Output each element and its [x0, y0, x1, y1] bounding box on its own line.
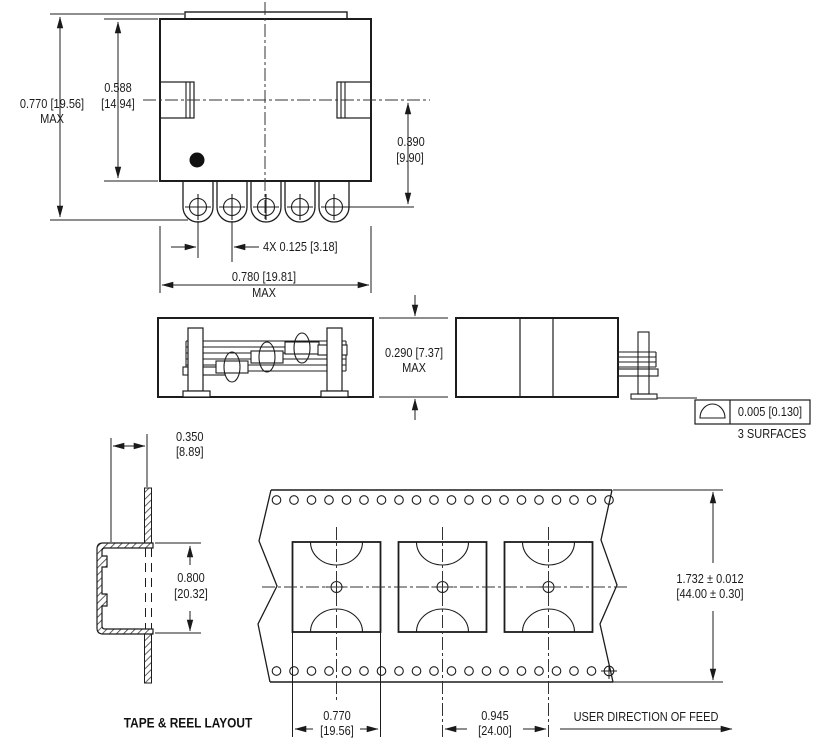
tape-dimensions	[293, 490, 733, 737]
datum-hole-crosshair	[601, 663, 617, 679]
label-pocket-depth-mm: [8.89]	[176, 446, 204, 459]
pocket-profile	[97, 543, 153, 634]
drawing-linework	[0, 0, 817, 751]
tape-layout-linework	[258, 490, 732, 737]
pin1-indicator-dot	[190, 153, 205, 168]
label-pocket-depth: 0.350	[176, 431, 204, 444]
tape-break-right	[600, 490, 617, 682]
sprocket-holes-bottom	[272, 663, 617, 679]
label-flatness-value: 0.005 [0.130]	[738, 406, 802, 419]
label-pocket-width: 0.770	[323, 710, 351, 723]
label-tape-width: 1.732 ± 0.012	[676, 573, 743, 586]
label-side-height-max: MAX	[402, 362, 426, 375]
label-overall-width-max: MAX	[252, 287, 276, 300]
tape-break-left	[258, 490, 277, 682]
label-tape-width-mm: [44.00 ± 0.30]	[676, 588, 743, 601]
front-view-linework	[50, 2, 430, 293]
label-pocket-pitch: 0.945	[481, 710, 509, 723]
label-pocket-height: 0.800	[177, 572, 205, 585]
label-flatness-note: 3 SURFACES	[738, 428, 806, 441]
label-overall-width: 0.780 [19.81]	[232, 271, 296, 284]
label-overall-height-max: MAX	[40, 113, 64, 126]
label-lead-pitch: 4X 0.125 [3.18]	[263, 241, 338, 254]
label-pocket-height-mm: [20.32]	[174, 588, 208, 601]
label-side-height: 0.290 [7.37]	[385, 347, 443, 360]
label-lead-length: 0.390	[397, 136, 425, 149]
front-view-dimensions	[50, 14, 414, 293]
label-overall-height: 0.770 [19.56]	[20, 98, 84, 111]
surface-profile-symbol-icon	[700, 404, 725, 418]
label-feed-direction: USER DIRECTION OF FEED	[574, 711, 719, 724]
label-tape-title: TAPE & REEL LAYOUT	[124, 716, 253, 730]
end-view-leads	[618, 332, 658, 399]
sprocket-holes-top	[272, 496, 613, 505]
label-body-height: 0.588	[104, 82, 132, 95]
label-pocket-width-mm: [19.56]	[320, 725, 354, 738]
pocket-section-dimensions	[111, 434, 201, 633]
label-body-height-mm: [14.94]	[101, 98, 135, 111]
label-pocket-pitch-mm: [24.00]	[478, 725, 512, 738]
drawing-canvas: 0.770 [19.56] MAX 0.588 [14.94] 0.390 [9…	[0, 0, 817, 751]
label-lead-length-mm: [9.90]	[396, 152, 424, 165]
pocket-section-linework	[97, 434, 201, 683]
